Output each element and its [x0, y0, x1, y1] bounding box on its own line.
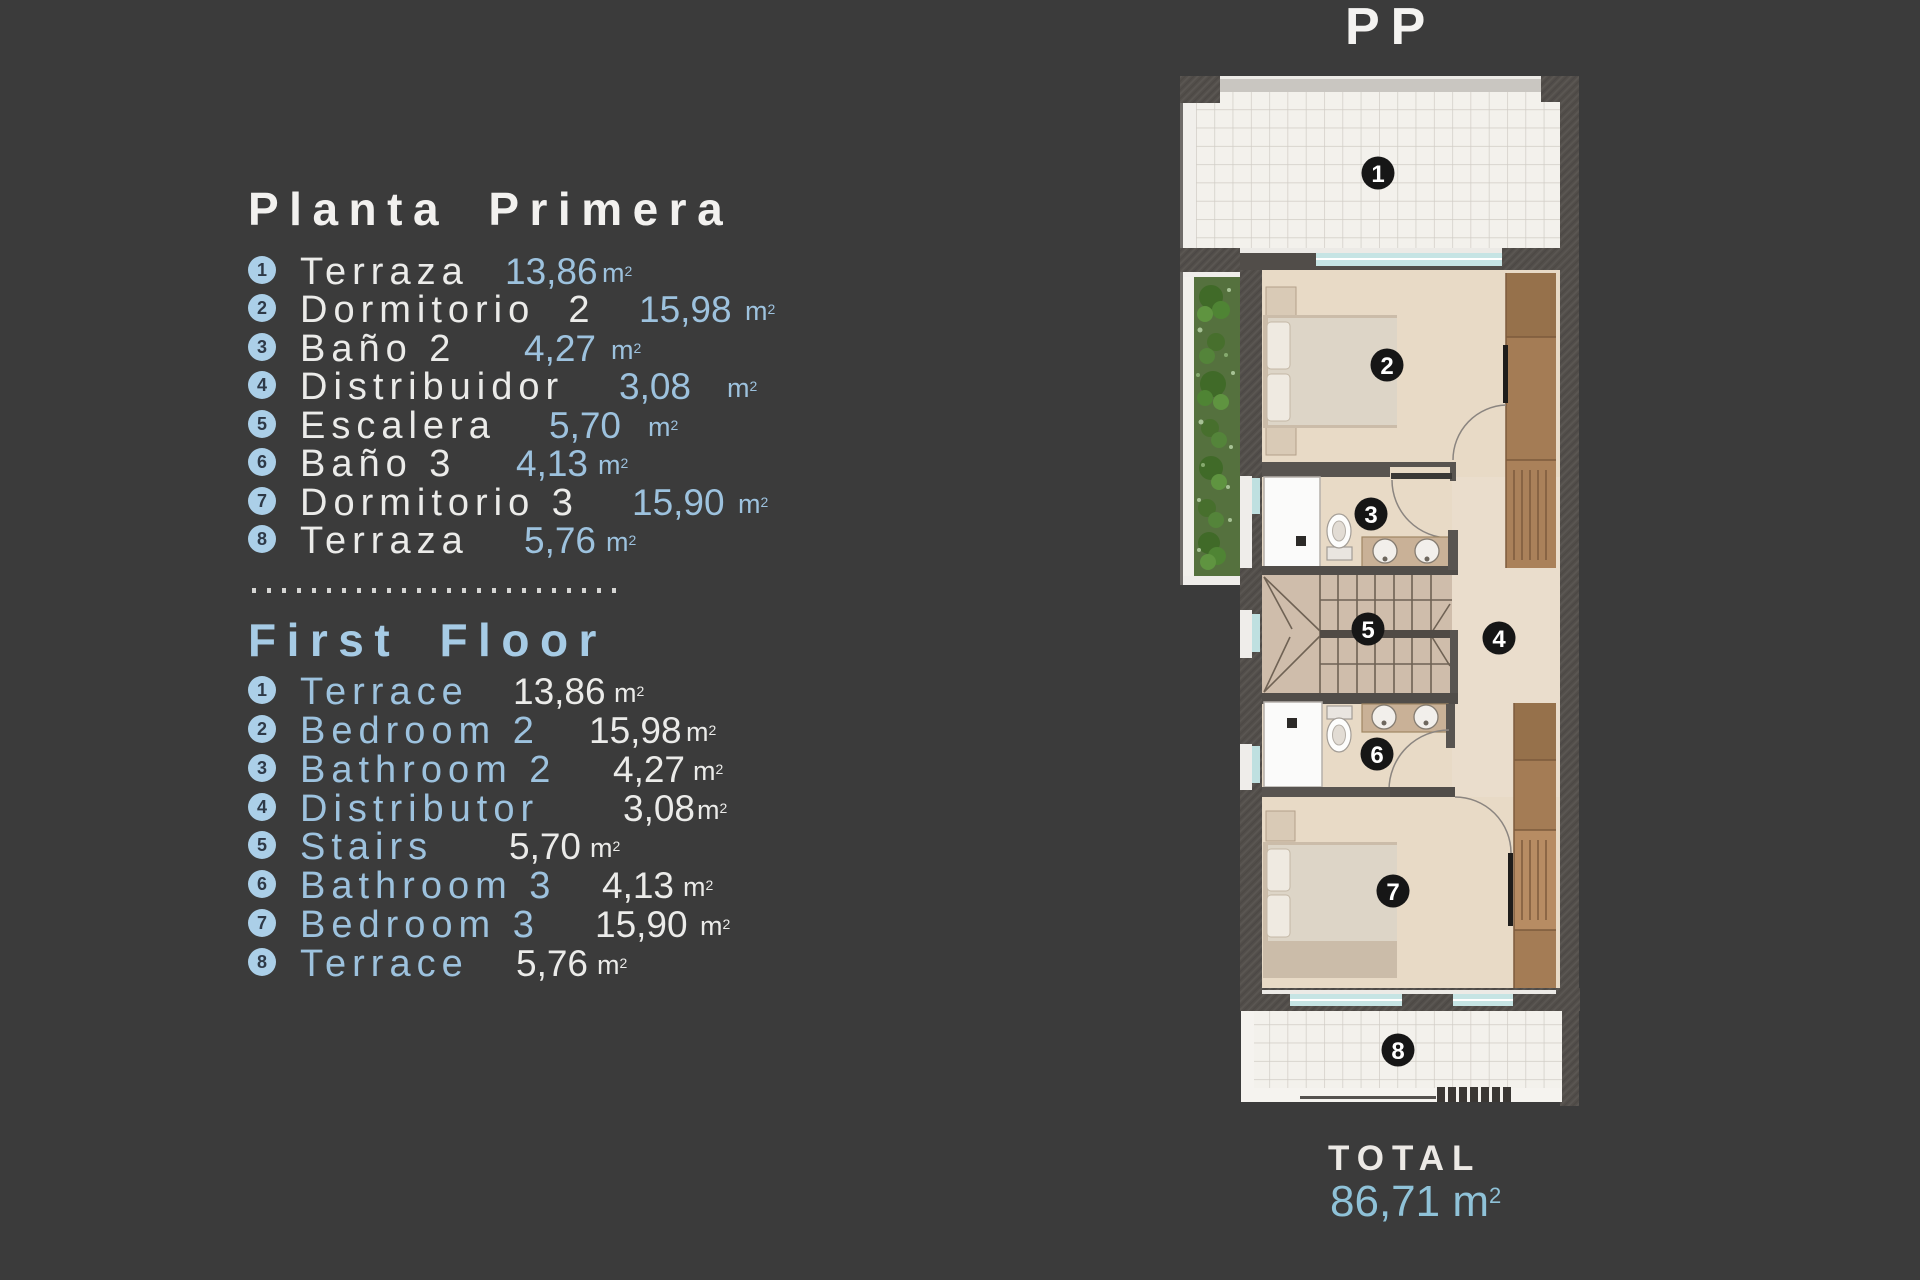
svg-text:2: 2	[1380, 353, 1393, 380]
svg-text:1: 1	[1371, 161, 1384, 188]
svg-text:8: 8	[1391, 1038, 1404, 1065]
svg-text:6: 6	[1370, 742, 1383, 769]
svg-text:5: 5	[1361, 617, 1374, 644]
svg-text:3: 3	[1364, 502, 1377, 529]
svg-text:4: 4	[1492, 626, 1506, 653]
svg-text:7: 7	[1386, 879, 1399, 906]
